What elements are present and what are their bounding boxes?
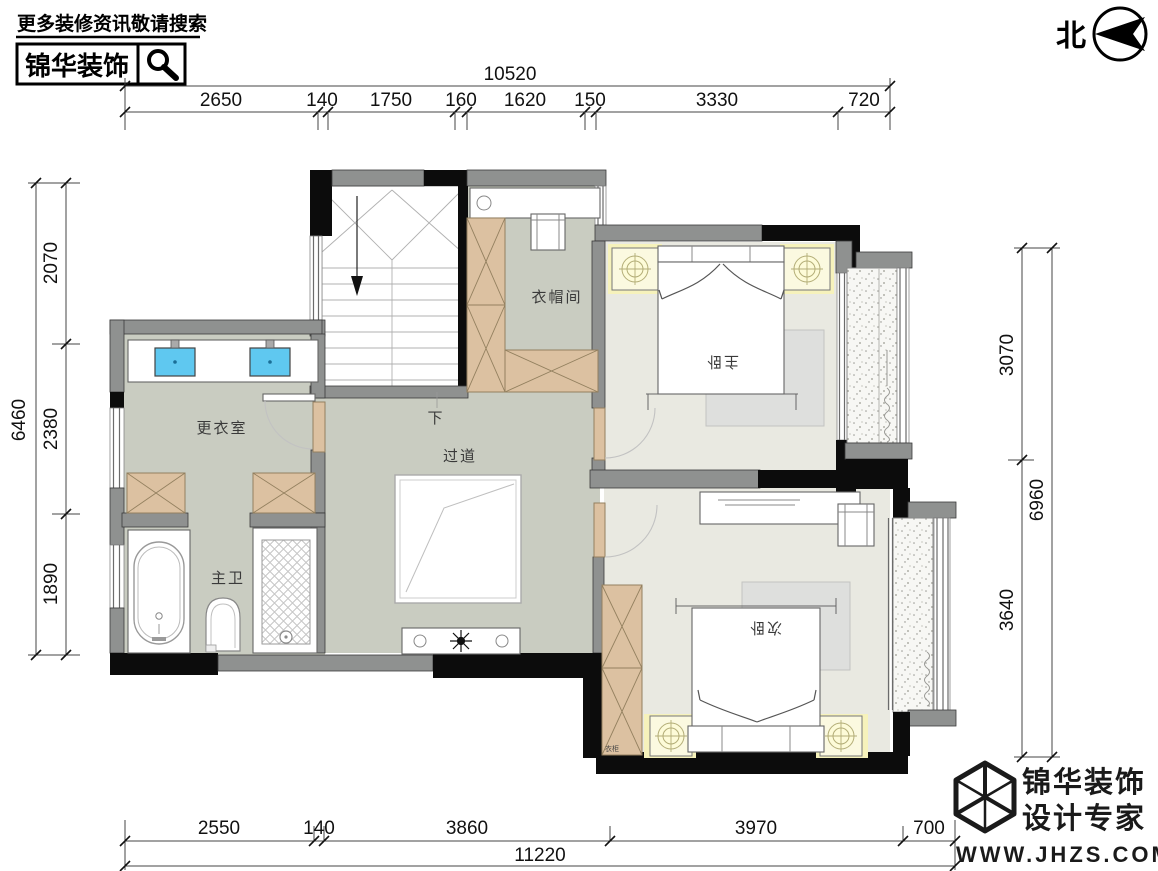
dim-top-seg: 720 [848, 90, 880, 111]
second-bedroom-label: 次卧 [748, 619, 782, 636]
dressing-room-label: 更衣室 [196, 420, 247, 437]
dim-top-seg: 150 [574, 90, 606, 111]
corridor-label: 过道 [443, 448, 477, 465]
master-bath-label: 主卫 [211, 570, 245, 587]
master-bedroom-label: 主卧 [705, 353, 739, 370]
dim-top-seg: 2650 [200, 90, 242, 111]
master-balcony [845, 252, 912, 489]
footer-brand: 锦华装饰 [1022, 766, 1146, 799]
dim-left-seg: 2380 [41, 408, 62, 450]
dim-top-seg: 1750 [370, 90, 412, 111]
dim-bottom: 2550 140 3860 3970 700 11220 [120, 818, 960, 871]
header-brand-search: 更多装修资讯敬请搜索 锦华装饰 [16, 12, 207, 84]
dim-top-total: 10520 [484, 64, 537, 85]
dim-top: 10520 2650 140 1750 160 1620 150 3330 72… [120, 64, 895, 130]
plant-icon [450, 630, 472, 652]
dim-bottom-seg: 3860 [446, 818, 488, 839]
shower [253, 528, 317, 653]
dim-top-seg: 3330 [696, 90, 738, 111]
chair [531, 214, 565, 250]
dim-bottom-total: 11220 [514, 845, 565, 866]
wardrobe-cabinet: 衣柜 [602, 585, 642, 755]
north-label: 北 [1056, 20, 1086, 53]
north-compass-icon [1094, 8, 1146, 60]
dim-left: 6460 2070 2380 1890 [9, 178, 80, 660]
wardrobe-tag: 衣柜 [605, 744, 619, 753]
dim-bottom-seg: 700 [913, 818, 945, 839]
dim-top-seg: 160 [445, 90, 477, 111]
double-bed [646, 246, 798, 410]
dim-right-seg: 3640 [997, 589, 1018, 631]
cloakroom-label: 衣帽间 [531, 289, 582, 306]
dim-top-seg: 140 [306, 90, 338, 111]
dim-right-total: 6960 [1027, 479, 1048, 521]
toilet [206, 598, 240, 652]
dim-bottom-seg: 2550 [198, 818, 240, 839]
footer-logo: 锦华装饰 设计专家 WWW.JHZS.COM [956, 763, 1158, 867]
chair [838, 504, 874, 546]
bathtub [134, 542, 184, 644]
stairwell [322, 186, 462, 392]
north-indicator: 北 [1056, 8, 1146, 60]
dim-right: 3070 3640 6960 [997, 243, 1060, 762]
stairs-down-label: 下 [427, 410, 444, 427]
dim-left-seg: 1890 [41, 563, 62, 605]
brand-name: 锦华装饰 [25, 51, 129, 81]
dim-top-seg: 1620 [504, 90, 546, 111]
dim-right-seg: 3070 [997, 334, 1018, 376]
search-hint-text: 更多装修资讯敬请搜索 [17, 12, 207, 35]
desk [700, 492, 860, 524]
dim-bottom-seg: 3970 [735, 818, 777, 839]
dim-left-total: 6460 [9, 399, 30, 441]
dim-bottom-seg: 140 [303, 818, 335, 839]
second-balcony [889, 488, 957, 756]
footer-website: WWW.JHZS.COM [956, 842, 1158, 867]
console-table [402, 628, 520, 654]
floor-plan-svg: 更多装修资讯敬请搜索 锦华装饰 北 10520 [0, 0, 1158, 871]
footer-tagline: 设计专家 [1022, 801, 1146, 835]
dim-left-seg: 2070 [41, 242, 62, 284]
cube-logo-icon [956, 763, 1014, 831]
floorplan-page: 更多装修资讯敬请搜索 锦华装饰 北 10520 [0, 0, 1158, 871]
